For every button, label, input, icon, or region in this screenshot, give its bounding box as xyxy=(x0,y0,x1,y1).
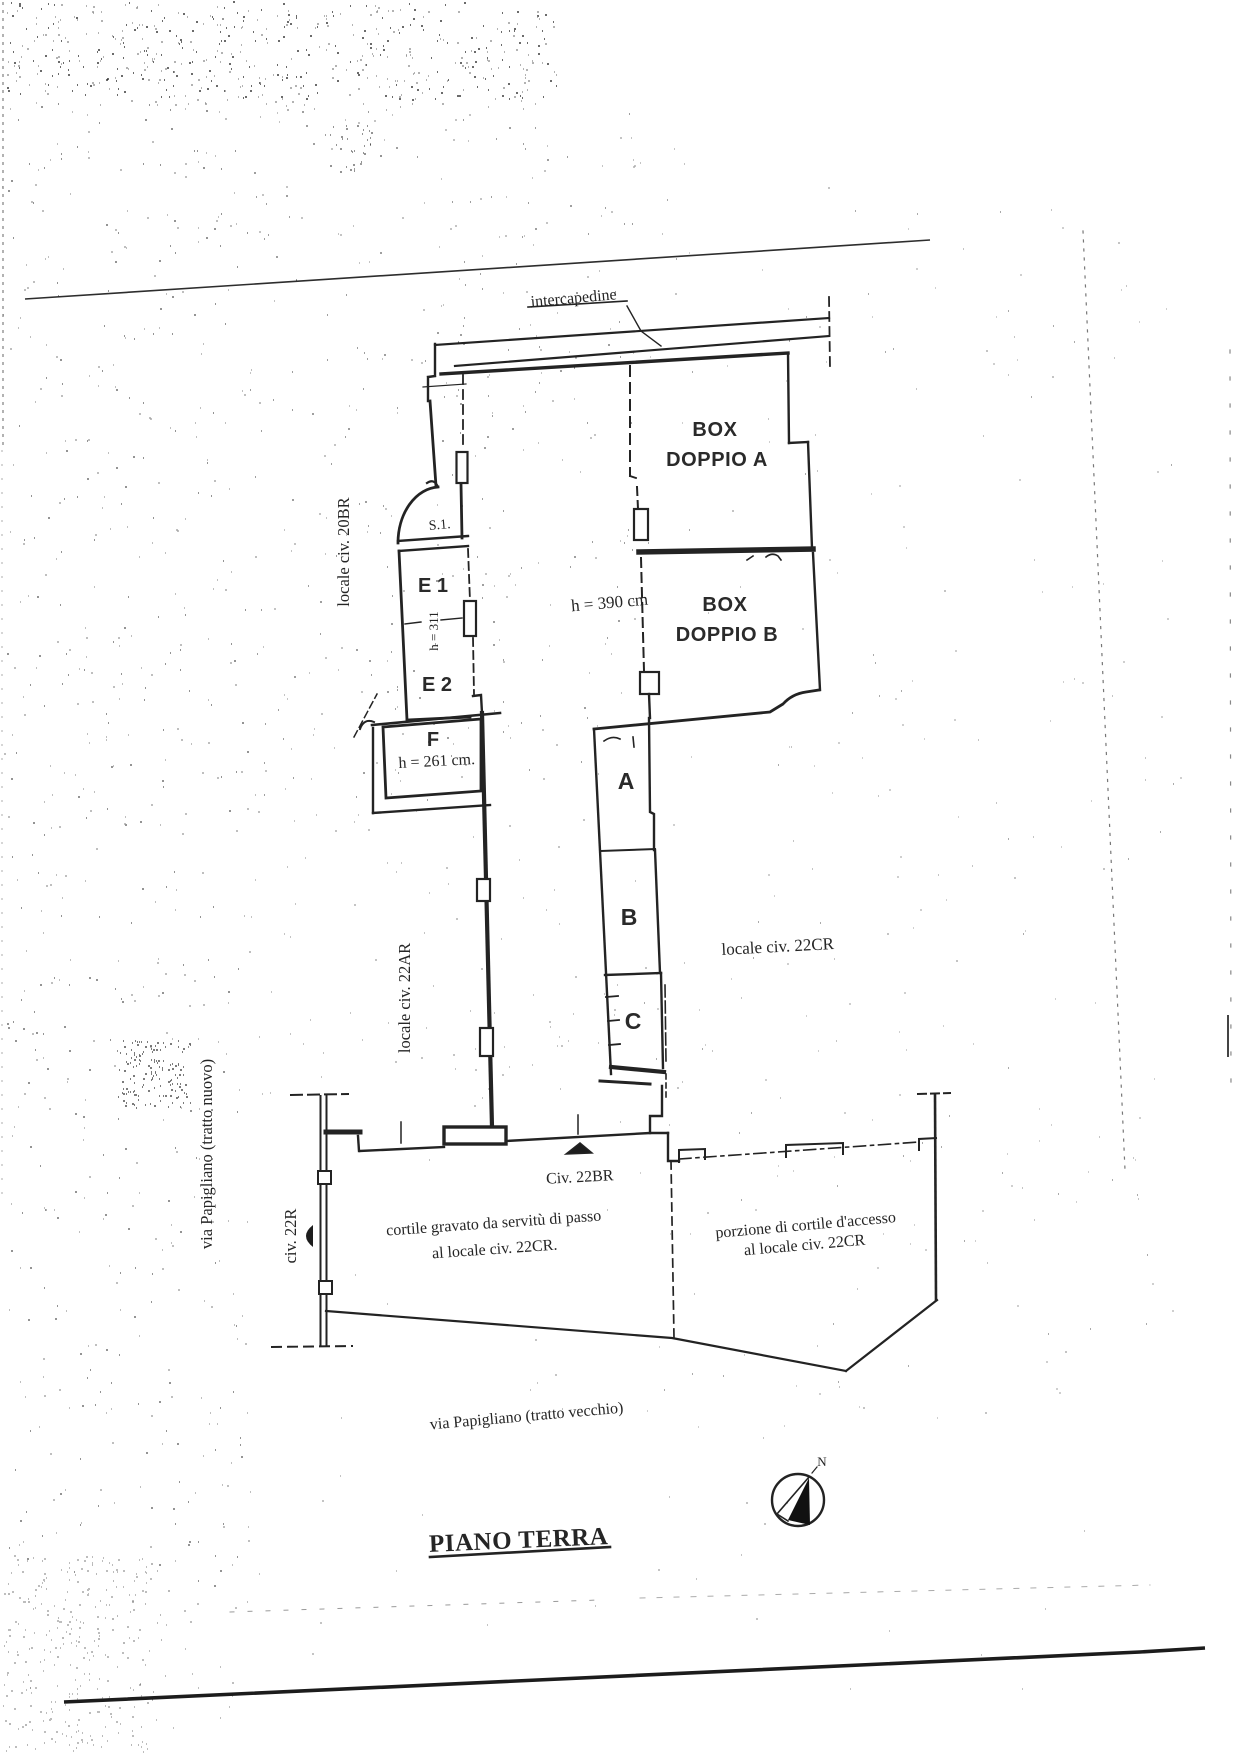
svg-text:S.1.: S.1. xyxy=(428,517,451,534)
svg-text:E 1: E 1 xyxy=(418,575,448,597)
svg-text:F: F xyxy=(427,729,439,751)
svg-text:via Papigliano (tratto nuovo): via Papigliano (tratto nuovo) xyxy=(197,1059,216,1249)
svg-text:BOX: BOX xyxy=(692,419,737,441)
svg-text:locale civ. 20BR: locale civ. 20BR xyxy=(334,497,353,606)
svg-text:N: N xyxy=(817,1454,827,1469)
svg-text:DOPPIO B: DOPPIO B xyxy=(676,624,779,646)
svg-text:locale civ. 22AR: locale civ. 22AR xyxy=(395,943,414,1053)
svg-text:E 2: E 2 xyxy=(422,674,452,696)
svg-text:civ. 22R: civ. 22R xyxy=(281,1209,300,1264)
svg-text:A: A xyxy=(618,768,635,794)
svg-text:B: B xyxy=(621,904,638,930)
svg-text:Civ. 22BR: Civ. 22BR xyxy=(546,1167,615,1188)
svg-text:h = 311: h = 311 xyxy=(426,611,441,650)
svg-text:BOX: BOX xyxy=(702,594,747,616)
svg-text:DOPPIO A: DOPPIO A xyxy=(666,449,768,471)
svg-text:C: C xyxy=(625,1008,642,1034)
